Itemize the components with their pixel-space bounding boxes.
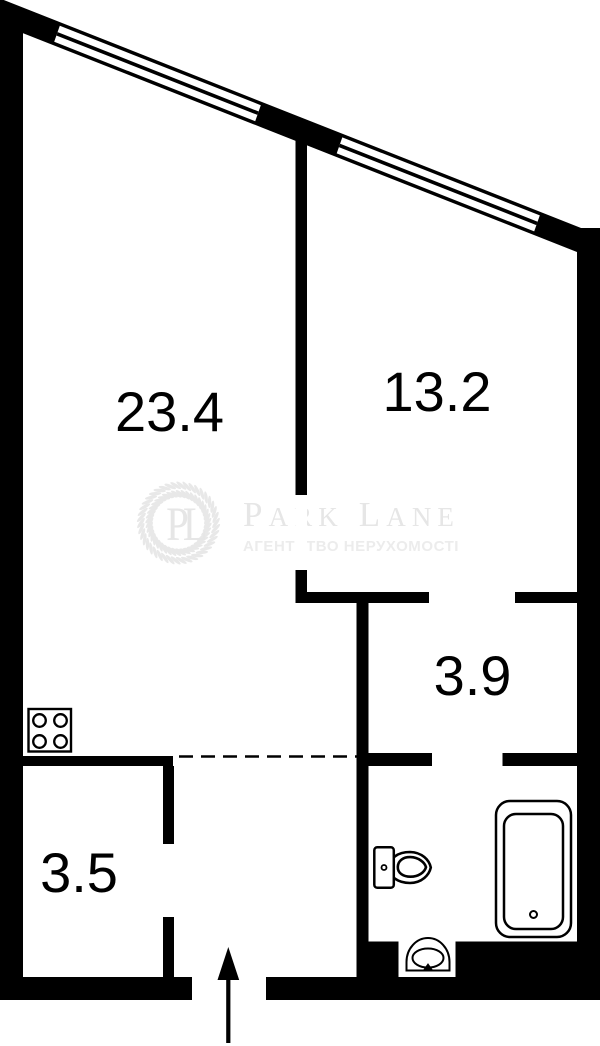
svg-text:3.5: 3.5 <box>40 841 118 904</box>
svg-text:PL: PL <box>166 497 206 551</box>
svg-text:3.9: 3.9 <box>434 644 512 707</box>
svg-text:23.4: 23.4 <box>115 380 224 443</box>
svg-text:13.2: 13.2 <box>383 360 492 423</box>
svg-text:АГЕНТСТВО НЕРУХОМОСТІ: АГЕНТСТВО НЕРУХОМОСТІ <box>243 538 459 555</box>
